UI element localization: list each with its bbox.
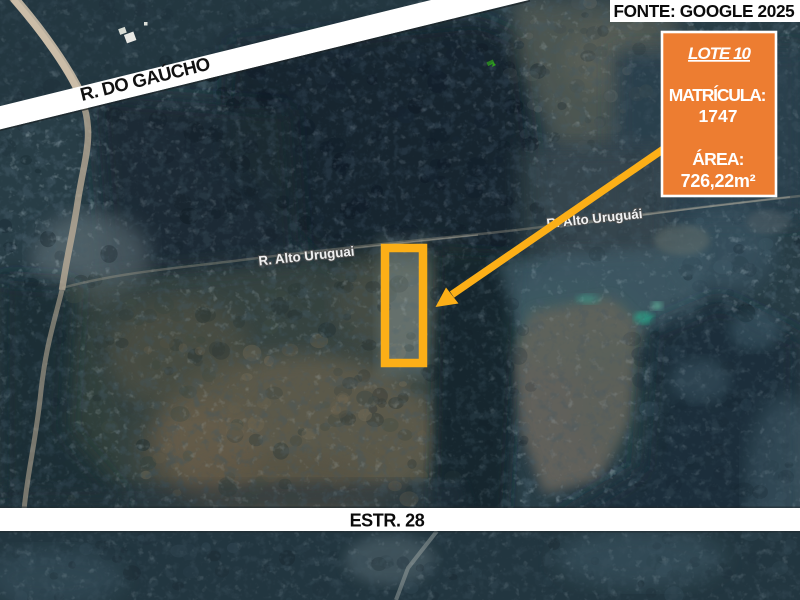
svg-text:FONTE: GOOGLE 2025: FONTE: GOOGLE 2025 [614, 1, 796, 21]
svg-text:726,22m²: 726,22m² [681, 171, 756, 191]
svg-text:ESTR. 28: ESTR. 28 [350, 511, 425, 531]
svg-text:1747: 1747 [699, 106, 738, 126]
svg-text:MATRÍCULA:: MATRÍCULA: [669, 84, 766, 105]
svg-text:LOTE 10: LOTE 10 [688, 44, 752, 63]
svg-text:ÁREA:: ÁREA: [692, 148, 743, 169]
